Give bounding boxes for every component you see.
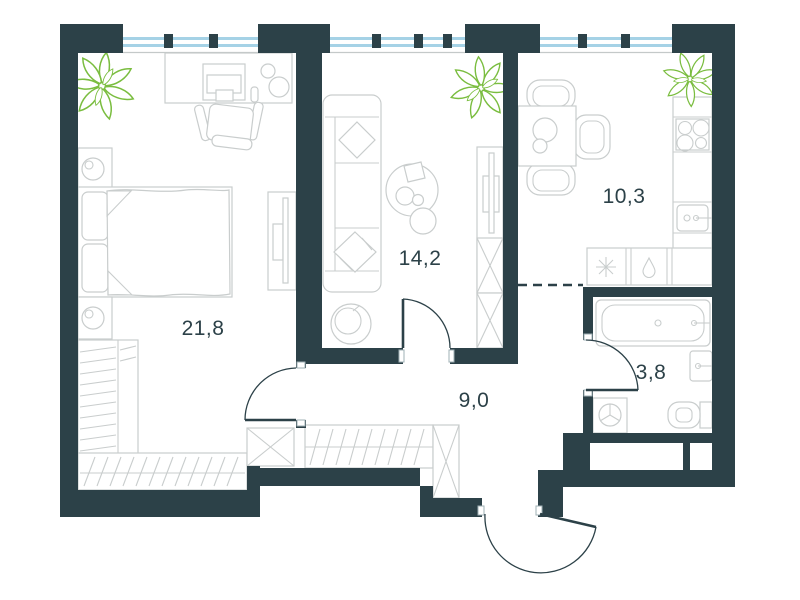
living-room-door xyxy=(399,299,454,362)
hallway-area-label: 9,0 xyxy=(459,389,490,412)
bathroom-area-label: 3,8 xyxy=(636,361,667,384)
wall-segment xyxy=(683,443,690,470)
wall-segment xyxy=(583,287,593,340)
double-bed xyxy=(78,187,232,297)
entrance-door xyxy=(478,506,596,573)
nightstand-lamp xyxy=(78,148,112,190)
plant-icon xyxy=(68,53,135,120)
coffee-table xyxy=(386,162,438,234)
wall-segment xyxy=(258,24,330,53)
fridge-snowflake-icon xyxy=(596,257,616,277)
wall-segment xyxy=(60,24,78,517)
bedroom-door xyxy=(245,362,305,426)
shelving-rack xyxy=(78,340,138,455)
wall-segment xyxy=(465,24,540,53)
pen-icon xyxy=(251,87,258,102)
window xyxy=(123,34,258,53)
pouf xyxy=(331,304,371,344)
windows xyxy=(123,34,672,53)
nightstand-lamp xyxy=(78,297,112,339)
blanket xyxy=(107,189,230,296)
wall-segment xyxy=(60,490,260,517)
wall-segment xyxy=(296,53,322,348)
chair xyxy=(527,163,575,195)
bedroom-cabinet-x xyxy=(247,428,294,466)
wall-segment xyxy=(306,348,403,364)
toilet-icon xyxy=(668,402,712,428)
monitor-icon xyxy=(203,64,245,101)
window xyxy=(540,34,672,53)
dining-table xyxy=(518,80,610,195)
book-icon xyxy=(404,162,425,182)
kitchen-area-label: 10,3 xyxy=(603,185,646,208)
wall-segment xyxy=(247,466,260,490)
wall-segment xyxy=(583,287,712,297)
kitchen-counter-right xyxy=(673,97,712,267)
wall-segment xyxy=(260,468,420,486)
living-area-label: 14,2 xyxy=(399,247,442,270)
cup-icon xyxy=(269,77,289,97)
wall-segment xyxy=(712,24,735,487)
wall-segment xyxy=(503,53,518,364)
window xyxy=(330,34,465,53)
floor-plan: 21,8 14,2 10,3 9,0 3,8 xyxy=(0,0,800,600)
desk-chair xyxy=(194,102,264,151)
kitchen-sink-icon xyxy=(677,205,712,231)
chair xyxy=(574,115,610,159)
sofa xyxy=(323,95,381,292)
cup-icon xyxy=(261,64,275,78)
bedroom-area-label: 21,8 xyxy=(182,317,225,340)
hall-cabinet-x xyxy=(433,425,459,498)
bedroom-tv-panel xyxy=(268,192,296,290)
wall-segment xyxy=(433,498,482,517)
bathtub xyxy=(596,300,710,346)
furniture-layer xyxy=(68,43,726,498)
hall-wardrobe-hangers xyxy=(305,425,433,468)
tv-stand xyxy=(477,147,503,348)
desk xyxy=(165,53,292,103)
washing-machine-icon xyxy=(593,398,627,433)
wall-segment xyxy=(420,486,433,517)
pillow-icon xyxy=(82,244,108,292)
kitchen-counter-bottom xyxy=(587,248,712,285)
washbasin xyxy=(690,351,712,381)
pillow-icon xyxy=(82,192,108,240)
wall-segment xyxy=(583,433,735,443)
cooktop-burners-icon xyxy=(676,119,709,151)
bedroom-wardrobe-hangers xyxy=(78,453,247,490)
